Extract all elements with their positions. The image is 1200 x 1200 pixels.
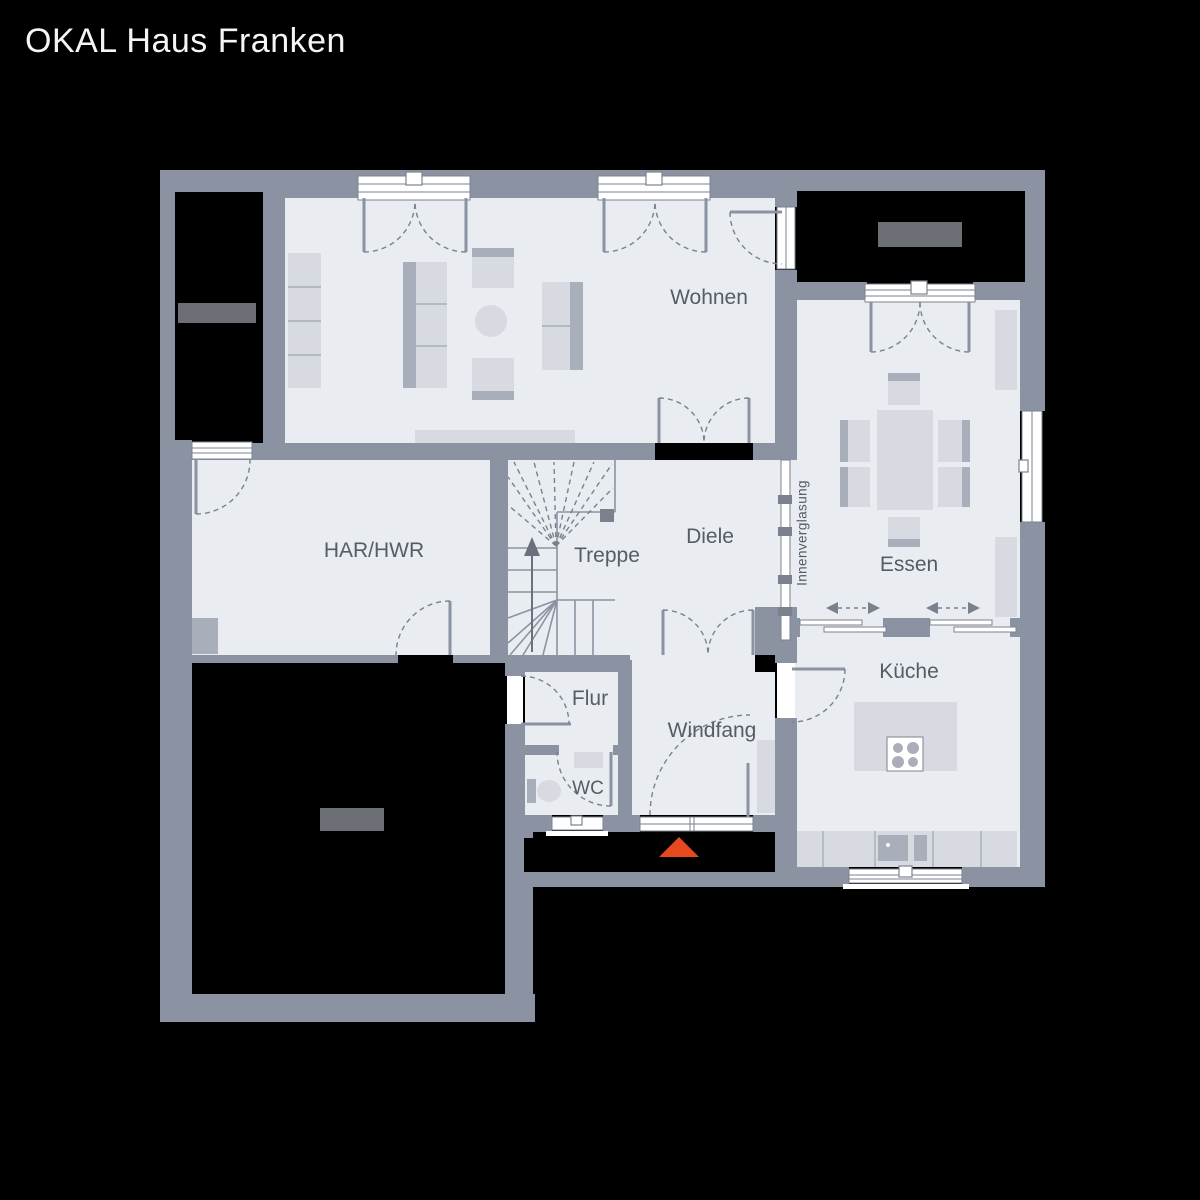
wall-essen-kueche-b	[883, 618, 930, 637]
washbasin	[574, 752, 603, 768]
tall-cabinet-north	[995, 310, 1017, 390]
chair-west-2-back	[840, 467, 848, 507]
wall-wc-north-a	[525, 745, 559, 755]
floor-plan-page: OKAL Haus Franken Wohnen HAR/HWR Treppe …	[0, 0, 1200, 1200]
sliding-door-panel	[954, 627, 1016, 632]
redacted-label-band	[878, 222, 962, 247]
wall-kueche-south-a	[775, 867, 849, 887]
wall-terrace-divider	[263, 192, 285, 460]
wall-wohnen-east-a	[775, 191, 797, 207]
chair-north-back	[888, 373, 920, 381]
redacted-label-band	[178, 303, 256, 323]
door-knob	[911, 281, 927, 294]
flur-wc-windfang-floor	[525, 672, 775, 815]
wall-wc-south-b	[603, 815, 618, 832]
sofa	[416, 262, 447, 388]
sliding-door-panel	[800, 620, 862, 625]
room-label-diele: Diele	[686, 525, 734, 549]
wall-flur-west-b	[505, 724, 525, 815]
window-sill	[546, 831, 608, 836]
chair-west-1-back	[840, 420, 848, 462]
room-label-kueche: Küche	[879, 660, 939, 684]
annotation-innenverglasung: Innenverglasung	[795, 480, 810, 586]
window-handle	[899, 866, 912, 877]
tall-cabinet-south	[995, 537, 1017, 617]
door-opening-kueche	[777, 663, 795, 718]
appliance	[914, 835, 927, 861]
burner	[908, 757, 918, 767]
toilet-tank	[527, 779, 536, 803]
coffee-table	[475, 305, 507, 337]
door-opening-flur	[507, 676, 523, 724]
wall-windfang-south-a	[618, 815, 640, 832]
room-label-wohnen: Wohnen	[670, 286, 748, 310]
room-label-essen: Essen	[880, 553, 938, 577]
wall-windfang-east-b	[775, 718, 797, 867]
glazing-mullion	[778, 575, 792, 584]
door-knob	[406, 172, 422, 185]
sofa-back	[403, 262, 416, 388]
armchair-top-back	[472, 248, 514, 257]
glazing-mullion	[778, 495, 792, 504]
window-handle	[1019, 460, 1028, 472]
burner	[893, 743, 903, 753]
wall-wc-east	[618, 745, 632, 815]
wall-porch	[524, 872, 788, 887]
room-label-wc: WC	[572, 778, 604, 800]
faucet	[886, 843, 890, 847]
burner	[892, 756, 904, 768]
wall-wohnen-east-b	[775, 270, 797, 460]
wall-diele-north-stub	[753, 443, 790, 460]
sliding-door-panel	[930, 620, 992, 625]
redacted-porch-strip	[524, 838, 768, 872]
room-label-treppe: Treppe	[574, 544, 640, 568]
shaft	[192, 618, 218, 654]
wall-garage-south	[160, 994, 535, 1022]
redacted-label-band	[320, 808, 384, 831]
door-knob	[646, 172, 662, 185]
floor-plan-drawing	[0, 0, 1200, 1200]
terrace-door-har	[192, 442, 252, 459]
wardrobe	[757, 740, 777, 813]
chair-south-back	[888, 539, 920, 547]
wall-har-treppe	[490, 460, 508, 655]
burner	[907, 742, 919, 754]
chair-east-2-back	[962, 467, 970, 507]
glazing-mullion	[778, 607, 792, 616]
newel-post	[600, 509, 614, 522]
wall-essen-north-b	[973, 282, 1020, 300]
sliding-door-panel	[824, 627, 886, 632]
room-label-har-hwr: HAR/HWR	[324, 539, 424, 563]
cabinet-side	[570, 282, 583, 370]
glazing-mullion	[778, 527, 792, 536]
cooktop	[887, 737, 923, 771]
wall-treppe-south	[505, 655, 630, 672]
armchair-bottom-back	[472, 391, 514, 400]
room-label-flur: Flur	[572, 687, 608, 711]
wall-east-b	[1020, 522, 1045, 887]
wall-windfang-east-a	[775, 640, 797, 663]
window-sill	[843, 884, 969, 889]
treppe-diele-floor	[505, 460, 781, 655]
wall-windfang-south-b	[753, 815, 775, 832]
wohnen-floor	[285, 198, 775, 443]
room-label-windfang: Windfang	[668, 719, 757, 743]
wall-flur-windfang	[618, 660, 632, 745]
dining-table	[877, 410, 933, 510]
page-title: OKAL Haus Franken	[25, 22, 346, 61]
kitchen-sink	[878, 835, 908, 861]
toilet-bowl	[537, 780, 561, 802]
diele-passage-floor	[630, 655, 755, 672]
chair-east-1-back	[962, 420, 970, 462]
wall-wc-south-a	[505, 815, 552, 832]
wall-kueche-south-b	[962, 867, 1020, 887]
window-handle	[571, 816, 582, 825]
